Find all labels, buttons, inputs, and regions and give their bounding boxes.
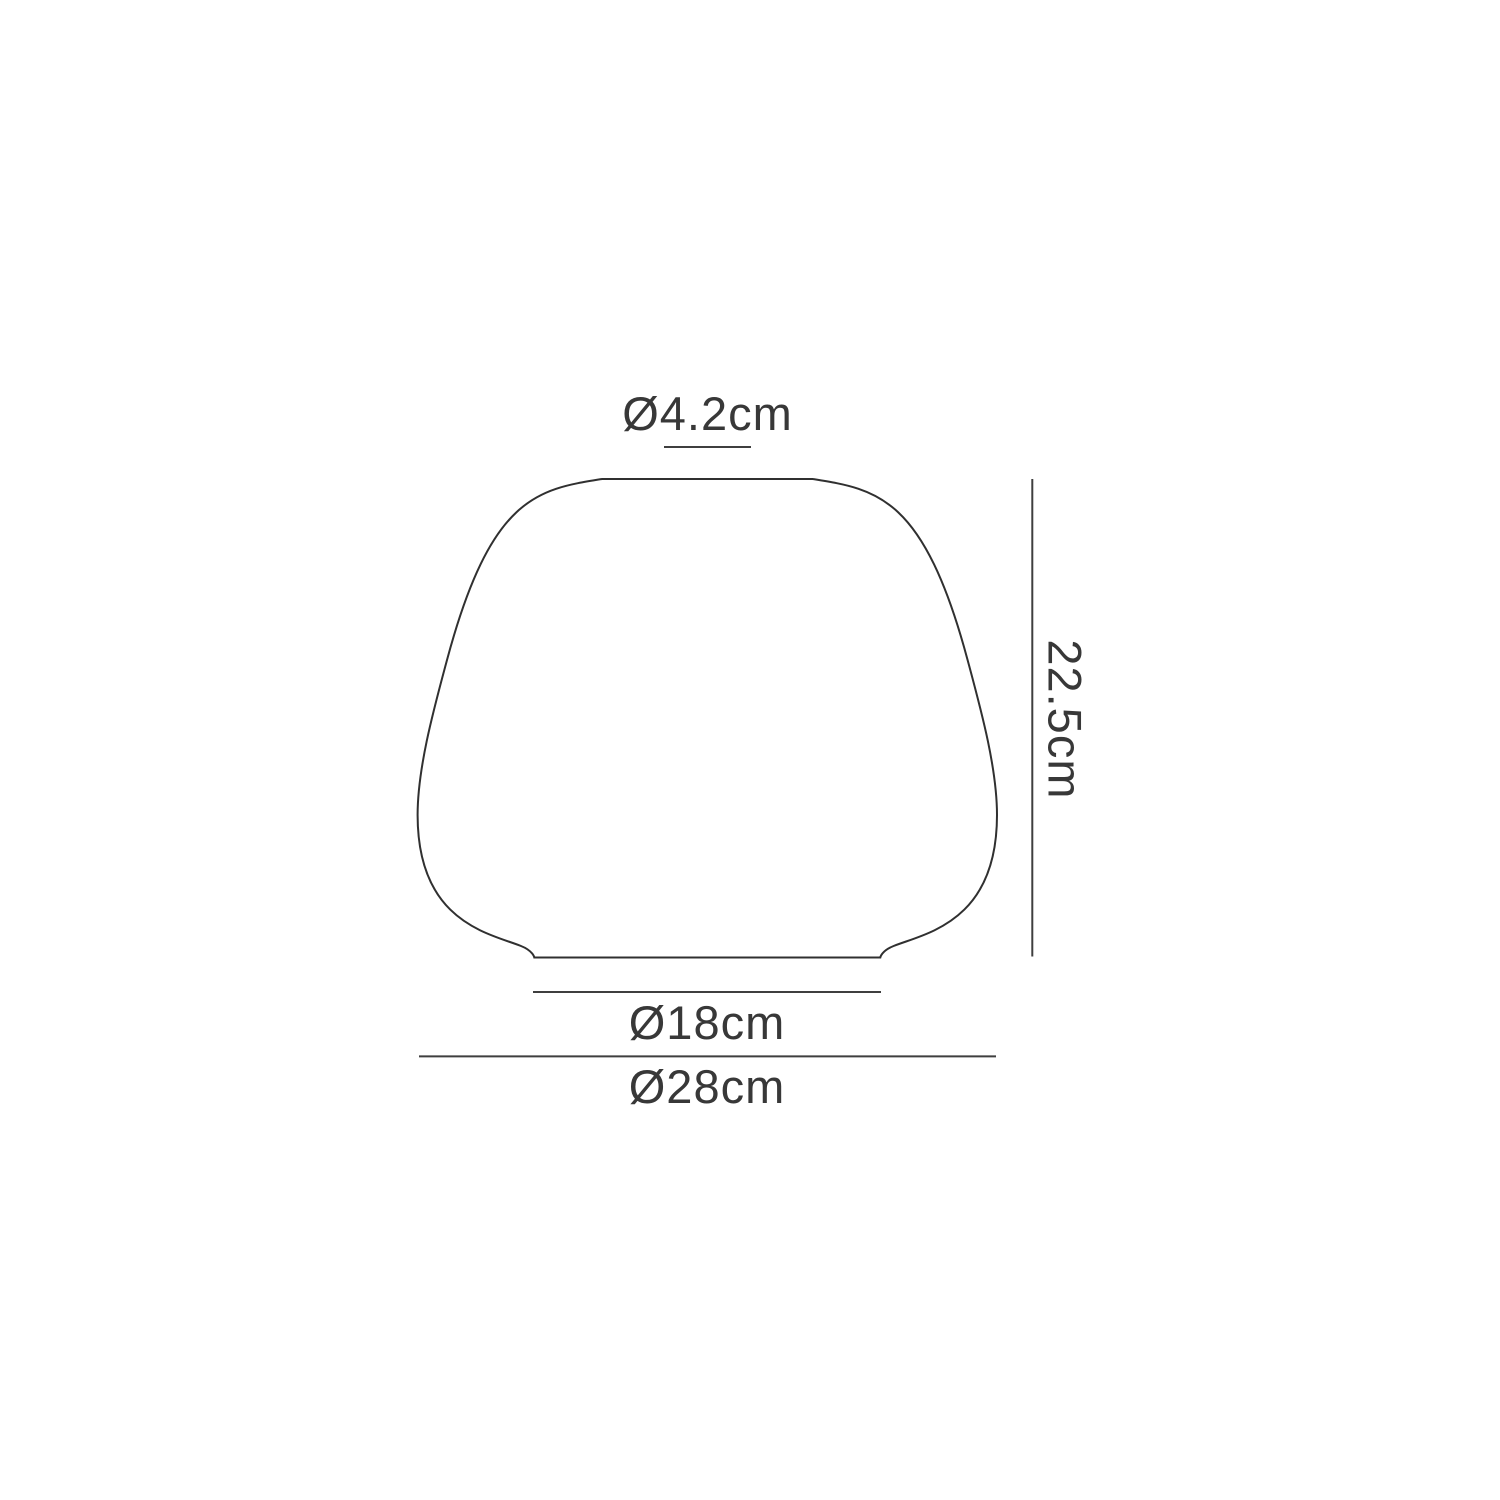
svg-text:22.5cm: 22.5cm [1039, 639, 1092, 799]
svg-text:Ø4.2cm: Ø4.2cm [622, 387, 793, 440]
svg-text:Ø28cm: Ø28cm [629, 1060, 786, 1113]
svg-text:Ø18cm: Ø18cm [629, 996, 786, 1049]
